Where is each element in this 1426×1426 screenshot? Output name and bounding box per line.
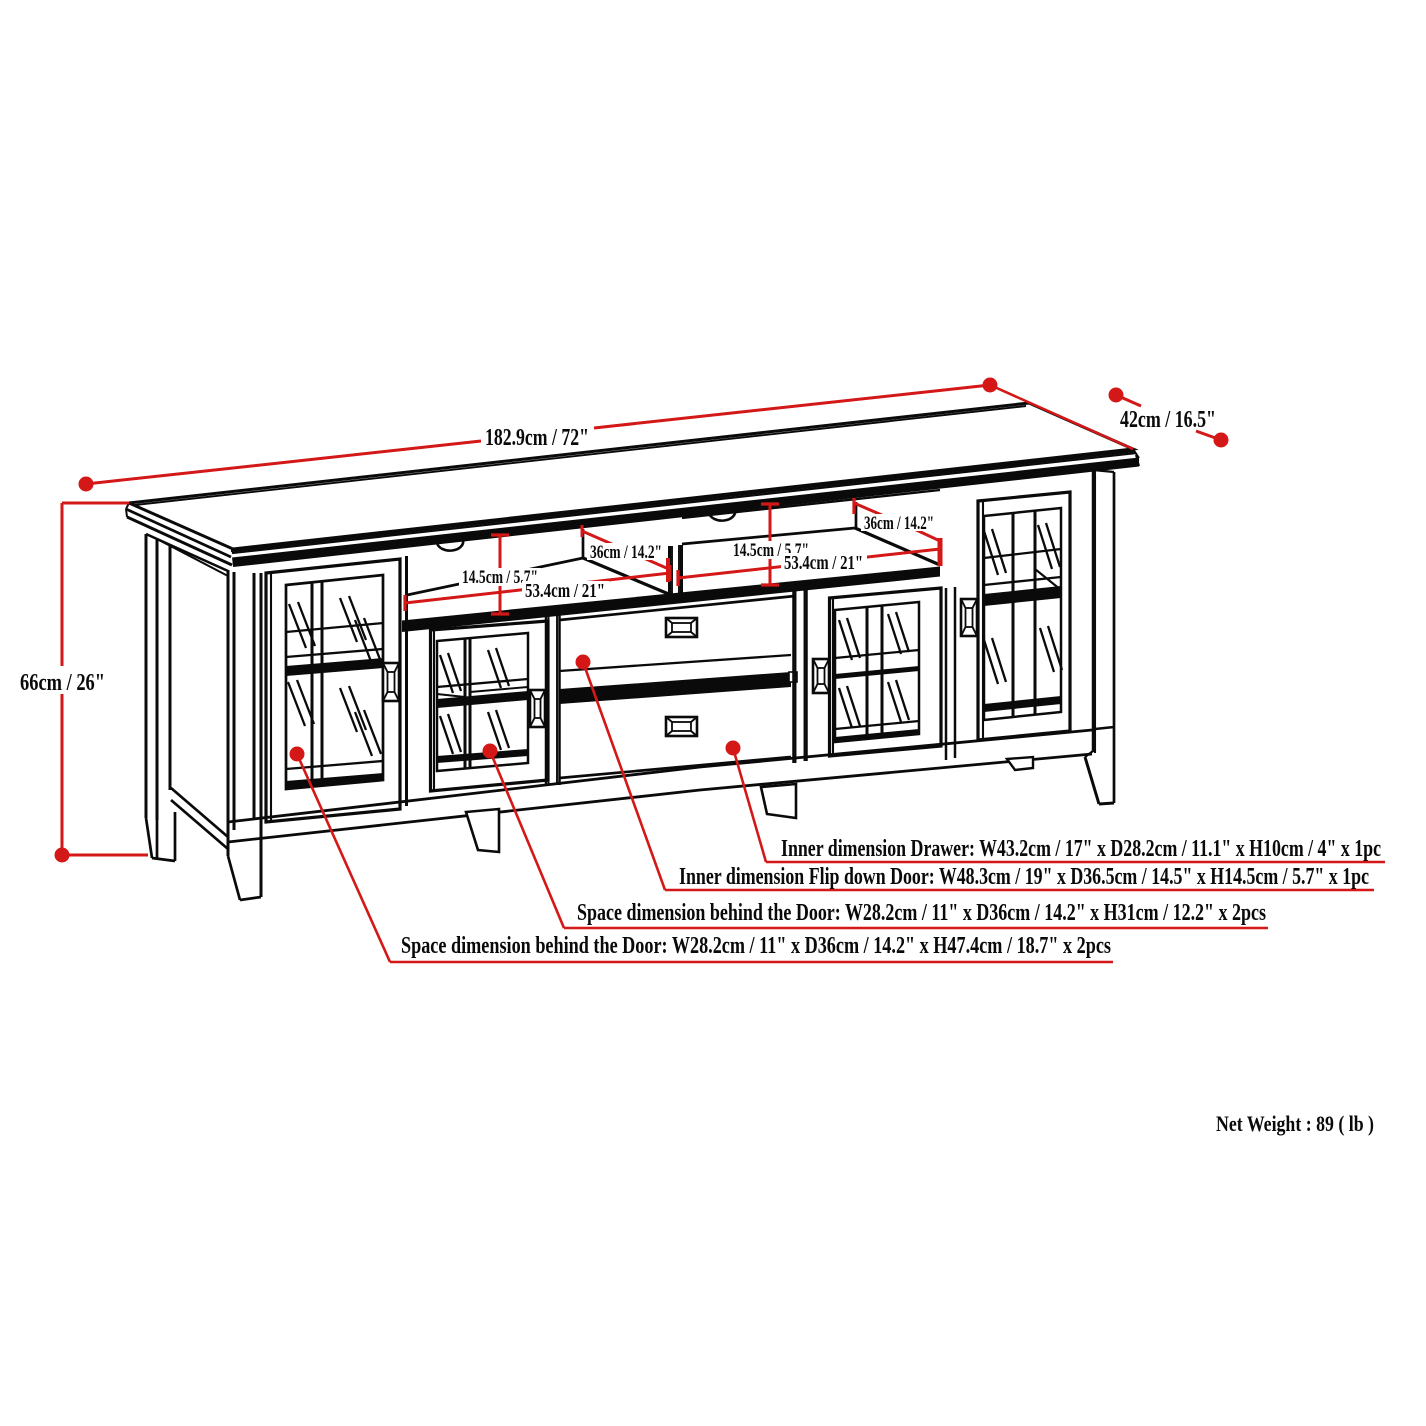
svg-text:66cm / 26": 66cm / 26" bbox=[20, 670, 105, 696]
svg-text:Space dimension behind the Doo: Space dimension behind the Door: W28.2cm… bbox=[401, 933, 1111, 959]
svg-text:42cm / 16.5": 42cm / 16.5" bbox=[1120, 407, 1216, 433]
svg-text:Inner dimension Flip down Door: Inner dimension Flip down Door: W48.3cm … bbox=[679, 864, 1369, 890]
svg-text:36cm / 14.2": 36cm / 14.2" bbox=[864, 513, 934, 534]
svg-text:182.9cm / 72": 182.9cm / 72" bbox=[485, 425, 589, 451]
svg-text:Inner dimension Drawer: W43.2c: Inner dimension Drawer: W43.2cm / 17" x … bbox=[781, 836, 1381, 862]
svg-text:Net Weight : 89 ( lb ): Net Weight : 89 ( lb ) bbox=[1216, 1111, 1374, 1136]
svg-text:36cm / 14.2": 36cm / 14.2" bbox=[590, 542, 662, 563]
svg-text:53.4cm / 21": 53.4cm / 21" bbox=[525, 580, 605, 602]
svg-text:Space dimension behind the Doo: Space dimension behind the Door: W28.2cm… bbox=[577, 900, 1266, 926]
svg-text:53.4cm / 21": 53.4cm / 21" bbox=[784, 552, 863, 574]
